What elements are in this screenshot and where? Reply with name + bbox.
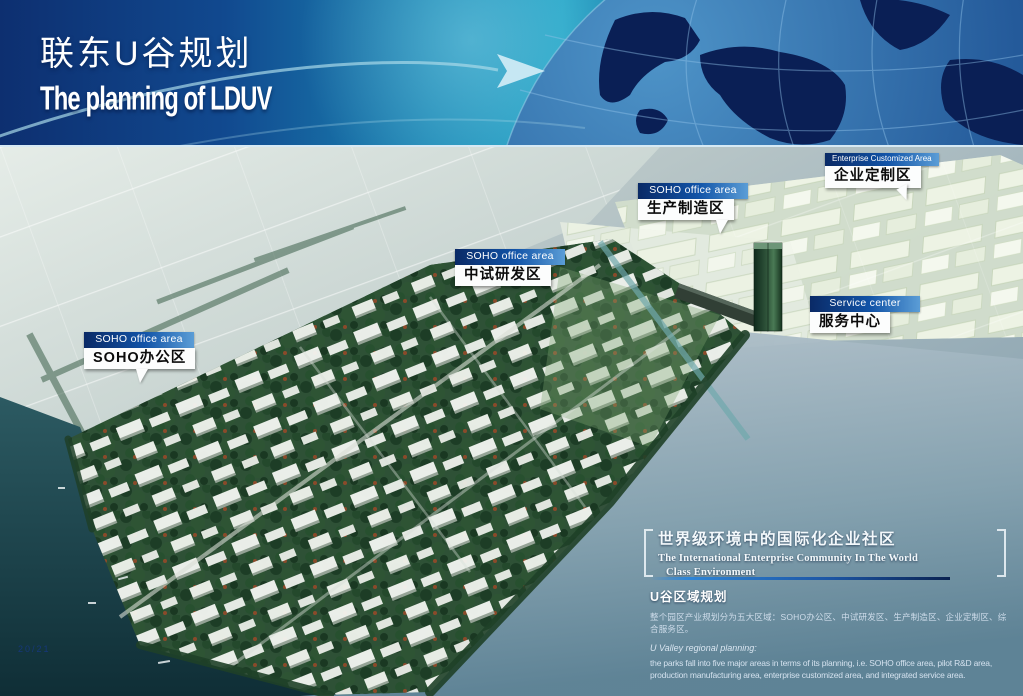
slogan-en-line2: Class Environment	[658, 567, 755, 578]
regional-desc-en-label: U Valley regional planning:	[650, 643, 1008, 653]
landmark-tower	[754, 243, 782, 331]
regional-desc-zh: 整个园区产业规划分为五大区域：SOHO办公区、中试研发区、生产制造区、企业定制区…	[650, 611, 1008, 635]
regional-title: U谷区域规划	[650, 586, 1008, 605]
page-subtitle: The planning of LDUV	[40, 80, 272, 118]
area-label-tag: SOHO office area	[638, 183, 748, 199]
area-label-service: Service center 服务中心	[810, 296, 920, 333]
slogan-block: 世界级环境中的国际化企业社区 The International Enterpr…	[658, 527, 1010, 579]
slide: 联东U谷规划 The planning of LDUV	[0, 0, 1023, 696]
header-banner: 联东U谷规划 The planning of LDUV	[0, 0, 1023, 147]
area-label-pilot-rd: SOHO office area 中试研发区	[455, 249, 565, 286]
bracket-left-icon	[644, 529, 653, 577]
area-label-name: 中试研发区	[455, 265, 551, 287]
area-label-production: SOHO office area 生产制造区	[638, 183, 748, 220]
regional-desc-en: the parks fall into five major areas in …	[650, 658, 1008, 682]
divider-rule	[650, 577, 950, 580]
area-label-name: 服务中心	[810, 312, 890, 334]
area-label-tag: SOHO office area	[84, 332, 194, 348]
area-label-tag: Enterprise Customized Area	[825, 153, 939, 166]
area-label-name: SOHO办公区	[84, 348, 195, 370]
slogan-en-line1: The International Enterprise Community I…	[658, 553, 918, 564]
area-label-enterprise: Enterprise Customized Area 企业定制区	[825, 153, 939, 188]
page-title: 联东U谷规划	[40, 26, 312, 75]
slogan-en: The International Enterprise Community I…	[658, 552, 1010, 579]
area-label-name: 生产制造区	[638, 199, 734, 221]
area-label-tag: SOHO office area	[455, 249, 565, 265]
page-number: 20/21	[18, 644, 51, 654]
area-label-tag: Service center	[810, 296, 920, 312]
bracket-right-icon	[997, 529, 1006, 577]
regional-planning-block: U谷区域规划 整个园区产业规划分为五大区域：SOHO办公区、中试研发区、生产制造…	[650, 586, 1008, 682]
area-label-soho-office: SOHO office area SOHO办公区	[84, 332, 195, 369]
slogan-zh: 世界级环境中的国际化企业社区	[658, 527, 1010, 549]
